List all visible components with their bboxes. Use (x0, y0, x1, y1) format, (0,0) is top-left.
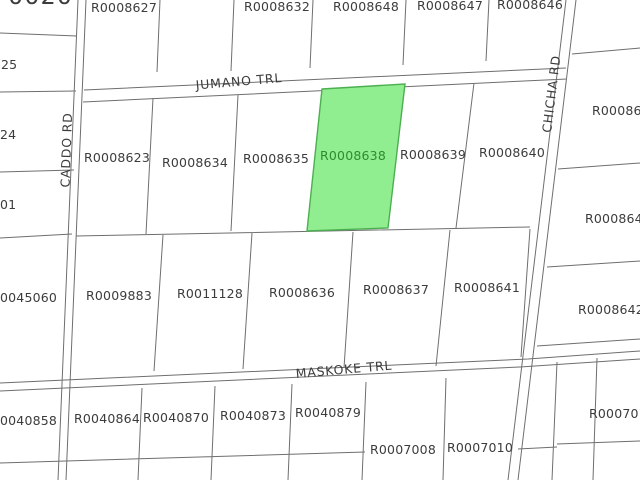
parcel-label: R0040873 (220, 410, 286, 423)
parcel-label: R0008648 (333, 1, 399, 14)
parcel-label: R0008636 (269, 287, 335, 300)
parcel-label: R0011128 (177, 288, 243, 301)
road-label-caddo-rd: CADDO RD (59, 112, 74, 187)
parcel-label: R0008635 (243, 153, 309, 166)
map-canvas[interactable]: R0008627 R0008632 R0008648 R0008647 R000… (0, 0, 640, 480)
parcel-label: R0007010 (447, 442, 513, 455)
parcel-label: R0008637 (363, 284, 429, 297)
parcel-label-partial: 0045060 (0, 292, 57, 305)
parcel-label: R0007008 (370, 444, 436, 457)
parcel-label-partial: 01 (0, 199, 16, 212)
parcel-label: R0008634 (162, 157, 228, 170)
parcel-label: R0008646 (497, 0, 563, 11)
parcel-label: R0009883 (86, 290, 152, 303)
parcel-label: R0008632 (244, 1, 310, 14)
parcel-label-partial: 24 (0, 129, 16, 142)
parcel-label: R0008627 (91, 2, 157, 15)
parcel-label-partial: 0020 (8, 0, 73, 8)
parcel-label: R0040864 (74, 413, 140, 426)
parcel-label: R0008623 (84, 152, 150, 165)
parcel-label-partial: 0040858 (0, 415, 57, 428)
parcel-label: R0008640 (479, 147, 545, 160)
parcel-label-partial: R000864 (592, 105, 640, 118)
parcel-label: R0008641 (454, 282, 520, 295)
parcel-label: R0008639 (400, 149, 466, 162)
parcel-label: R0040879 (295, 407, 361, 420)
highlighted-parcel-label: R0008638 (320, 150, 386, 163)
parcel-label-partial: 25 (1, 59, 17, 72)
parcel-label-partial: R000864 (585, 213, 640, 226)
parcel-label: R0040870 (143, 412, 209, 425)
parcel-label: R0008647 (417, 0, 483, 12)
parcel-label-partial: R0008642 (578, 304, 640, 317)
parcel-label-partial: R00070 (589, 408, 639, 421)
